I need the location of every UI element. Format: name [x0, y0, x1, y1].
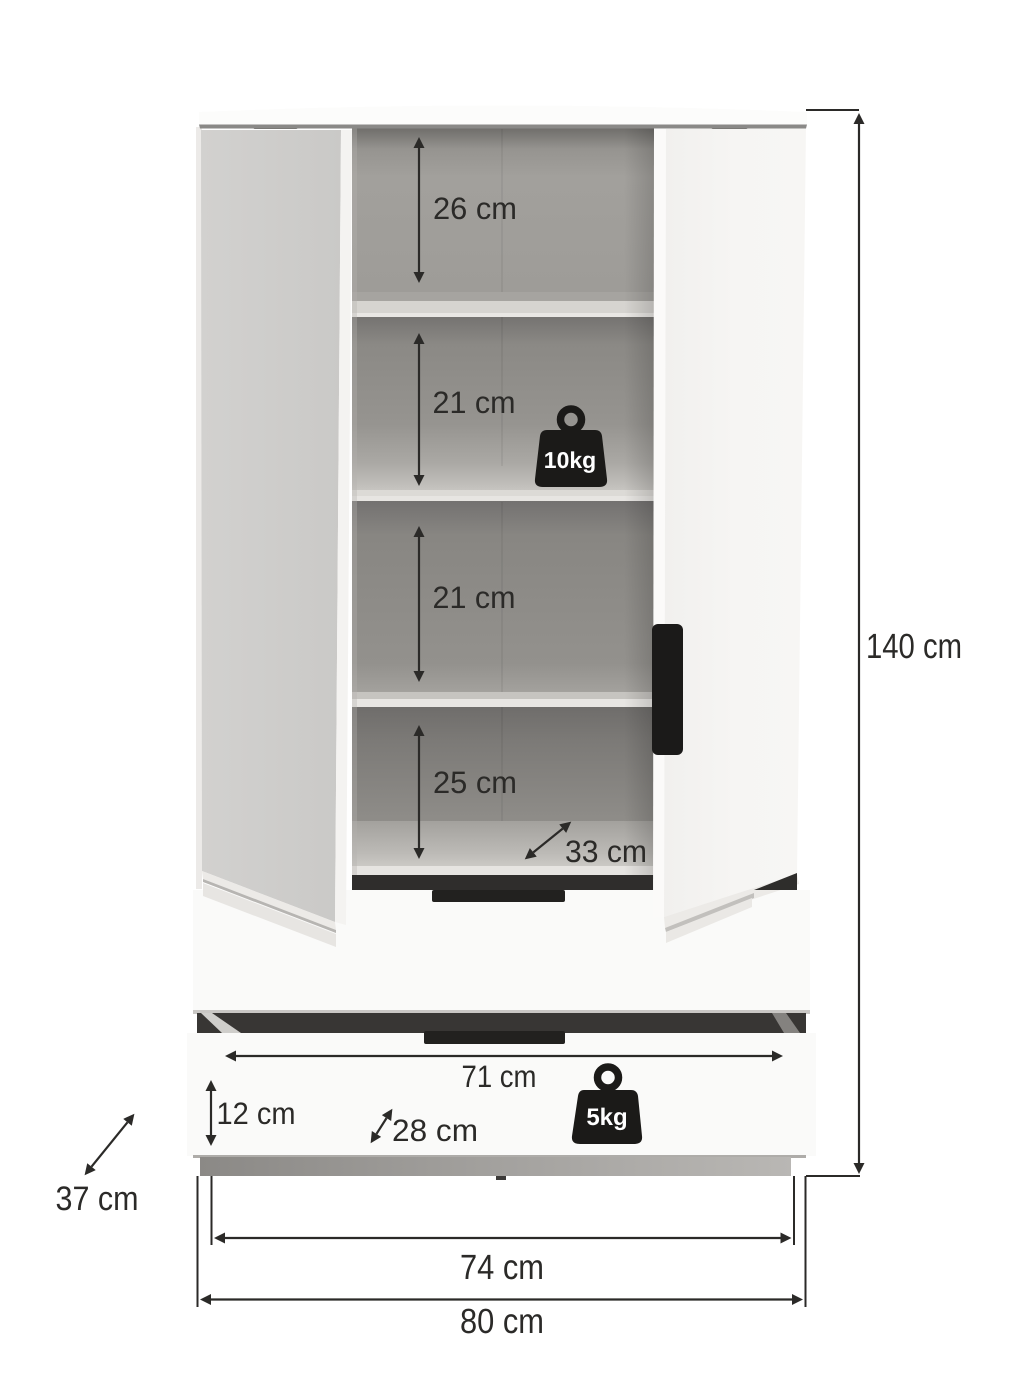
svg-text:21 cm: 21 cm [433, 385, 516, 420]
svg-text:5kg: 5kg [586, 1104, 627, 1131]
svg-text:37 cm: 37 cm [56, 1180, 139, 1218]
svg-text:71 cm: 71 cm [462, 1059, 537, 1094]
svg-text:74 cm: 74 cm [460, 1248, 544, 1287]
svg-text:140 cm: 140 cm [866, 627, 962, 666]
svg-text:80 cm: 80 cm [460, 1302, 544, 1341]
svg-text:25 cm: 25 cm [433, 765, 517, 800]
svg-text:28 cm: 28 cm [392, 1113, 478, 1148]
svg-text:21 cm: 21 cm [433, 580, 516, 615]
svg-text:26 cm: 26 cm [433, 191, 517, 226]
svg-text:10kg: 10kg [544, 447, 596, 473]
svg-text:33 cm: 33 cm [565, 834, 647, 869]
svg-text:12 cm: 12 cm [217, 1096, 296, 1131]
